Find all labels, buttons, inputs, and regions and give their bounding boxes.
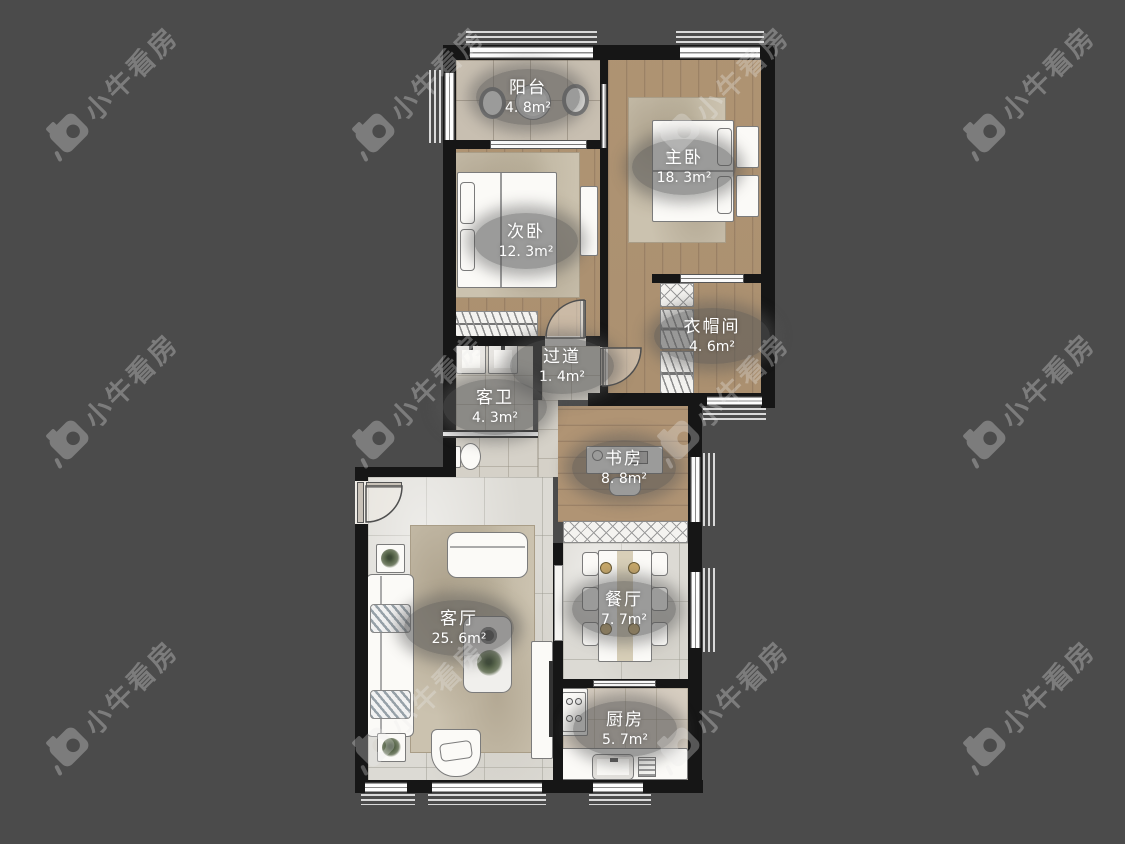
- sliding-door: [490, 140, 587, 149]
- faucet-icon: [610, 758, 618, 762]
- cloakroom-wardrobe: [660, 283, 694, 307]
- window-sill: [703, 453, 715, 526]
- camera-logo-icon: [964, 725, 1009, 770]
- room-name: 书房: [605, 449, 643, 469]
- window: [601, 84, 607, 148]
- room-area: 25. 6m²: [432, 631, 487, 647]
- camera-logo-icon: [964, 111, 1009, 156]
- watermark-text: 小牛看房: [74, 323, 186, 435]
- camera-logo-icon: [47, 111, 92, 156]
- watermark-text: 小牛看房: [74, 630, 186, 742]
- dining-chair: [651, 552, 668, 576]
- camera-logo-icon: [353, 418, 398, 463]
- sofa-cushion: [370, 690, 411, 719]
- room-area: 4. 8m²: [505, 100, 551, 116]
- sliding-door: [593, 680, 656, 687]
- watermark: 小牛看房: [43, 323, 186, 466]
- camera-logo-icon: [353, 111, 398, 156]
- watermark-text: 小牛看房: [991, 323, 1103, 435]
- loveseat: [447, 532, 528, 578]
- room-area: 18. 3m²: [657, 170, 712, 186]
- watermark-text: 小牛看房: [991, 16, 1103, 128]
- dining-chair: [582, 552, 599, 576]
- room-name: 过道: [543, 347, 581, 367]
- dish-rack-icon: [638, 757, 656, 777]
- second-bedroom-wardrobe: [454, 311, 538, 337]
- watermark: 小牛看房: [960, 323, 1103, 466]
- pillow: [460, 182, 475, 224]
- room-area: 5. 7m²: [602, 732, 648, 748]
- door-leaf: [366, 482, 402, 488]
- watermark: 小牛看房: [960, 630, 1103, 773]
- window-sill: [676, 31, 764, 43]
- pillow: [460, 229, 475, 271]
- study-cabinet-row: [563, 521, 688, 543]
- room-name: 客卫: [476, 388, 514, 408]
- floorplan-image: 阳台 4. 8m² 主卧 18. 3m² 次卧 12. 3m² 衣帽间 4. 6…: [0, 0, 1125, 844]
- window: [593, 782, 643, 793]
- window-sill: [429, 70, 441, 143]
- room-label-cloakroom: 衣帽间 4. 6m²: [654, 308, 770, 364]
- room-label-master: 主卧 18. 3m²: [632, 139, 736, 195]
- cabinet-niche: [554, 565, 563, 641]
- plant-icon: [477, 650, 503, 676]
- loveseat-back-line: [450, 546, 525, 548]
- plant-icon: [382, 738, 401, 757]
- camera-logo-icon: [47, 418, 92, 463]
- room-name: 餐厅: [605, 590, 643, 610]
- room-label-living: 客厅 25. 6m²: [404, 600, 514, 656]
- room-label-dining: 餐厅 7. 7m²: [572, 581, 676, 637]
- window-sill: [428, 794, 546, 805]
- room-label-second: 次卧 12. 3m²: [474, 213, 578, 269]
- room-name: 衣帽间: [684, 317, 741, 337]
- room-label-bathroom: 客卫 4. 3m²: [443, 379, 547, 435]
- room-area: 7. 7m²: [601, 612, 647, 628]
- second-bedroom-desk: [580, 186, 598, 256]
- toilet: [460, 443, 481, 470]
- window: [707, 396, 762, 406]
- window-sill: [703, 408, 766, 420]
- window: [680, 46, 760, 59]
- plant-icon: [381, 549, 400, 568]
- burner-icon: [566, 715, 573, 722]
- nightstand: [736, 126, 759, 168]
- watermark: 小牛看房: [43, 630, 186, 773]
- wall-segment: [688, 522, 702, 780]
- watermark: 小牛看房: [960, 16, 1103, 159]
- room-label-balcony: 阳台 4. 8m²: [476, 69, 580, 125]
- room-label-study: 书房 8. 8m²: [572, 440, 676, 496]
- wall-segment: [355, 467, 456, 477]
- window-sill: [703, 568, 715, 652]
- camera-logo-icon: [47, 725, 92, 770]
- window: [690, 457, 701, 522]
- room-name: 客厅: [440, 609, 478, 629]
- wall-segment: [761, 45, 775, 408]
- room-area: 12. 3m²: [499, 244, 554, 260]
- door-leaf: [580, 300, 586, 338]
- room-area: 8. 8m²: [601, 471, 647, 487]
- door-frame: [357, 482, 364, 523]
- room-name: 次卧: [507, 222, 545, 242]
- room-label-kitchen: 厨房 5. 7m²: [573, 701, 677, 757]
- watermark: 小牛看房: [43, 16, 186, 159]
- room-name: 阳台: [509, 78, 547, 98]
- room-name: 主卧: [665, 148, 703, 168]
- window: [690, 572, 701, 648]
- nightstand: [736, 175, 759, 217]
- place-setting: [600, 562, 612, 574]
- room-area: 4. 3m²: [472, 410, 518, 426]
- window: [365, 782, 407, 793]
- window-sill: [361, 794, 415, 805]
- burner-icon: [566, 698, 573, 705]
- window: [470, 46, 593, 59]
- sliding-door: [680, 274, 744, 283]
- room-area: 4. 6m²: [689, 339, 735, 355]
- room-area: 1. 4m²: [539, 369, 585, 385]
- window-sill: [589, 794, 651, 805]
- watermark-text: 小牛看房: [74, 16, 186, 128]
- place-setting: [628, 562, 640, 574]
- camera-logo-icon: [964, 418, 1009, 463]
- room-name: 厨房: [606, 710, 644, 730]
- window-sill: [466, 31, 597, 43]
- window: [444, 73, 455, 140]
- window: [432, 782, 542, 793]
- burner-icon: [575, 698, 582, 705]
- watermark-text: 小牛看房: [991, 630, 1103, 742]
